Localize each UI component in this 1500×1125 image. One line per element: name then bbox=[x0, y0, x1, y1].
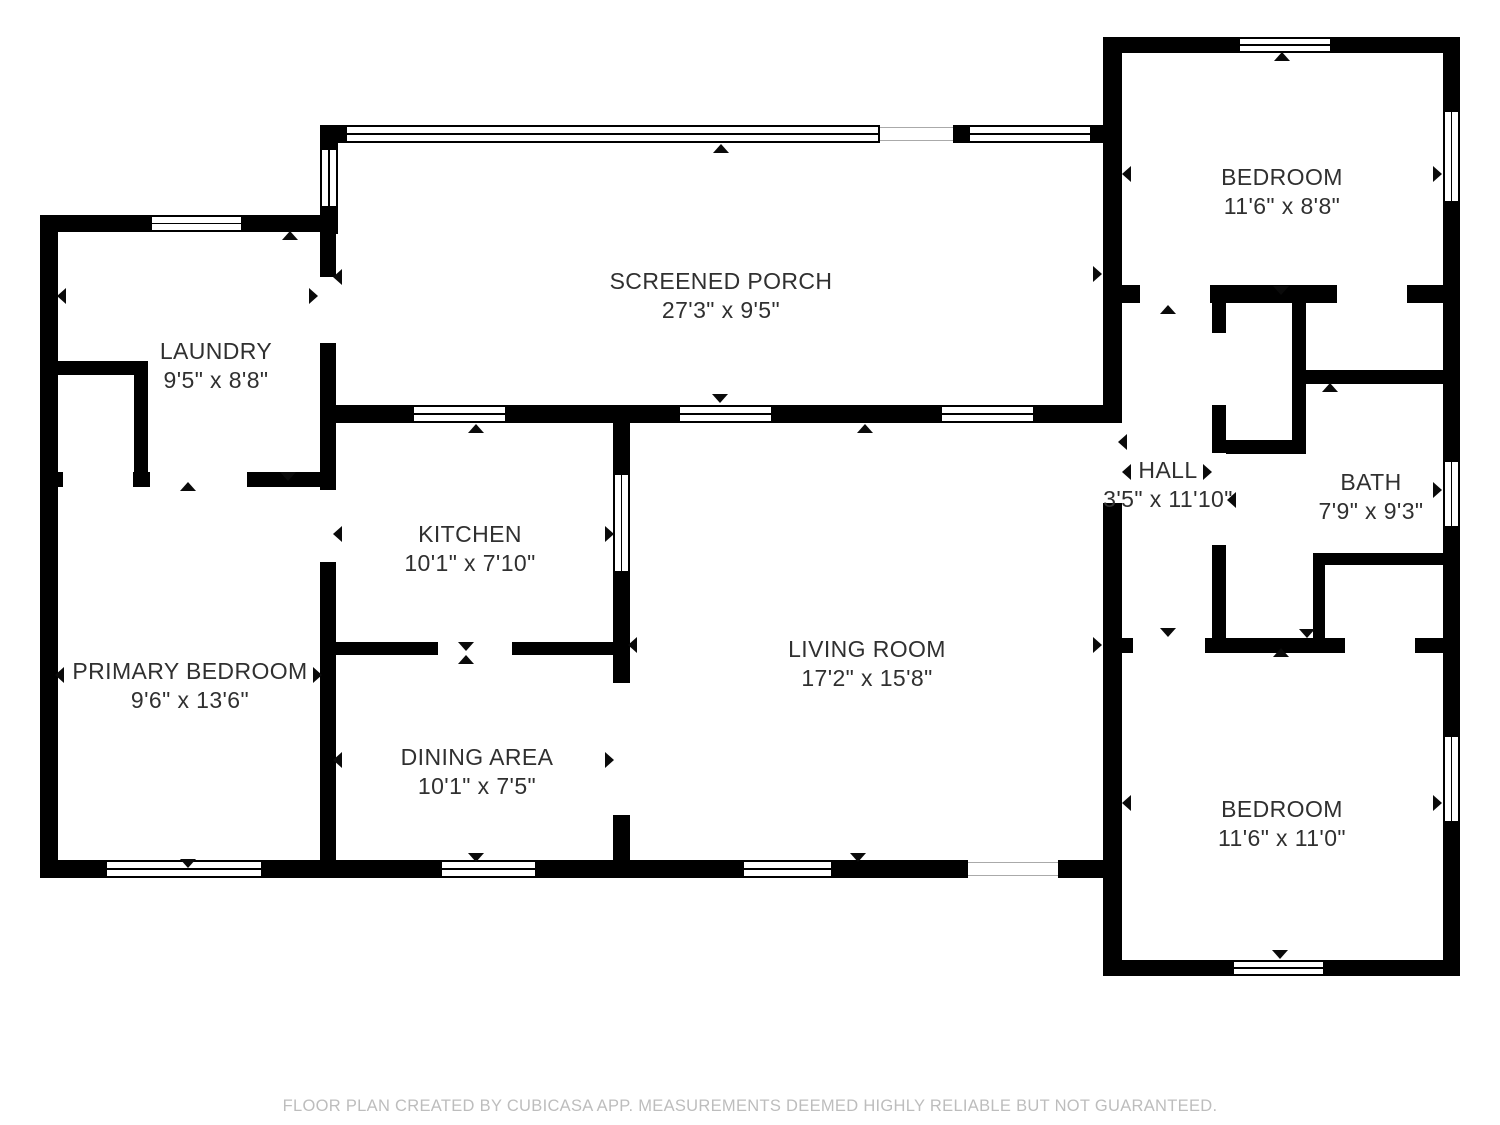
wall-segment bbox=[1103, 638, 1133, 653]
room-name: SCREENED PORCH bbox=[610, 267, 833, 296]
window bbox=[940, 405, 1035, 423]
room-dimensions: 7'9" x 9'3" bbox=[1319, 497, 1424, 526]
marker-arrow-icon bbox=[1160, 628, 1176, 637]
wall-segment bbox=[1103, 503, 1122, 960]
room-name: PRIMARY BEDROOM bbox=[72, 657, 307, 686]
room-label-hall: HALL3'5" x 11'10" bbox=[1103, 456, 1233, 514]
room-name: LAUNDRY bbox=[160, 337, 272, 366]
marker-arrow-icon bbox=[468, 853, 484, 862]
marker-arrow-icon bbox=[333, 526, 342, 542]
marker-arrow-icon bbox=[1273, 286, 1289, 295]
room-name: BEDROOM bbox=[1221, 163, 1343, 192]
window bbox=[412, 405, 507, 423]
room-label-dining-area: DINING AREA10'1" x 7'5" bbox=[401, 743, 554, 801]
room-label-bedroom-top: BEDROOM11'6" x 8'8" bbox=[1221, 163, 1343, 221]
wall-segment bbox=[1226, 440, 1306, 454]
wall-segment bbox=[320, 125, 338, 148]
marker-arrow-icon bbox=[1118, 434, 1127, 450]
wall-segment bbox=[1212, 545, 1226, 653]
window bbox=[678, 405, 773, 423]
marker-arrow-icon bbox=[309, 288, 318, 304]
window bbox=[1238, 37, 1332, 53]
marker-arrow-icon bbox=[333, 752, 342, 768]
window bbox=[1232, 960, 1325, 976]
marker-arrow-icon bbox=[1274, 52, 1290, 61]
marker-arrow-icon bbox=[55, 667, 64, 683]
wall-segment bbox=[512, 642, 630, 655]
room-name: DINING AREA bbox=[401, 743, 554, 772]
room-label-bath: BATH7'9" x 9'3" bbox=[1319, 468, 1424, 526]
wall-segment bbox=[332, 860, 440, 878]
wall-segment bbox=[1103, 285, 1122, 423]
room-dimensions: 9'5" x 8'8" bbox=[160, 366, 272, 395]
window bbox=[1443, 460, 1460, 528]
wall-segment bbox=[537, 860, 742, 878]
room-label-laundry: LAUNDRY9'5" x 8'8" bbox=[160, 337, 272, 395]
wall-segment bbox=[1407, 285, 1460, 303]
wall-segment bbox=[40, 472, 63, 487]
wall-segment bbox=[507, 405, 678, 423]
wall-segment bbox=[134, 361, 148, 487]
window bbox=[440, 860, 537, 878]
marker-arrow-icon bbox=[850, 853, 866, 862]
door-opening bbox=[880, 127, 953, 141]
window bbox=[613, 473, 630, 573]
footer-disclaimer: FLOOR PLAN CREATED BY CUBICASA APP. MEAS… bbox=[283, 1097, 1218, 1116]
wall-segment bbox=[1212, 295, 1226, 333]
room-label-kitchen: KITCHEN10'1" x 7'10" bbox=[404, 520, 535, 578]
wall-segment bbox=[613, 573, 630, 683]
wall-segment bbox=[1103, 37, 1122, 285]
marker-arrow-icon bbox=[1093, 266, 1102, 282]
room-dimensions: 17'2" x 15'8" bbox=[788, 664, 946, 693]
room-label-bedroom-bottom: BEDROOM11'6" x 11'0" bbox=[1218, 795, 1346, 853]
window bbox=[320, 148, 338, 208]
marker-arrow-icon bbox=[1273, 648, 1289, 657]
room-name: KITCHEN bbox=[404, 520, 535, 549]
marker-arrow-icon bbox=[458, 642, 474, 651]
marker-arrow-icon bbox=[1299, 629, 1315, 638]
marker-arrow-icon bbox=[458, 655, 474, 664]
marker-arrow-icon bbox=[1433, 482, 1442, 498]
floor-plan: LAUNDRY9'5" x 8'8"SCREENED PORCH27'3" x … bbox=[0, 0, 1500, 1125]
wall-segment bbox=[320, 405, 412, 423]
marker-arrow-icon bbox=[180, 482, 196, 491]
room-dimensions: 9'6" x 13'6" bbox=[72, 686, 307, 715]
wall-segment bbox=[1415, 638, 1443, 653]
marker-arrow-icon bbox=[1122, 166, 1131, 182]
room-name: LIVING ROOM bbox=[788, 635, 946, 664]
marker-arrow-icon bbox=[1122, 795, 1131, 811]
room-dimensions: 27'3" x 9'5" bbox=[610, 296, 833, 325]
wall-segment bbox=[332, 642, 438, 655]
marker-arrow-icon bbox=[713, 144, 729, 153]
marker-arrow-icon bbox=[1160, 305, 1176, 314]
room-name: BATH bbox=[1319, 468, 1424, 497]
marker-arrow-icon bbox=[605, 526, 614, 542]
wall-segment bbox=[773, 405, 940, 423]
wall-segment bbox=[40, 215, 58, 878]
room-label-living-room: LIVING ROOM17'2" x 15'8" bbox=[788, 635, 946, 693]
marker-arrow-icon bbox=[1433, 166, 1442, 182]
marker-arrow-icon bbox=[605, 752, 614, 768]
marker-arrow-icon bbox=[313, 667, 322, 683]
marker-arrow-icon bbox=[333, 269, 342, 285]
room-name: HALL bbox=[1103, 456, 1233, 485]
room-dimensions: 10'1" x 7'10" bbox=[404, 549, 535, 578]
marker-arrow-icon bbox=[1322, 383, 1338, 392]
wall-segment bbox=[1306, 370, 1443, 384]
room-dimensions: 10'1" x 7'5" bbox=[401, 772, 554, 801]
room-dimensions: 11'6" x 8'8" bbox=[1221, 192, 1343, 221]
marker-arrow-icon bbox=[280, 472, 296, 481]
window bbox=[968, 125, 1092, 143]
marker-arrow-icon bbox=[57, 288, 66, 304]
marker-arrow-icon bbox=[1272, 950, 1288, 959]
window bbox=[345, 125, 880, 143]
marker-arrow-icon bbox=[857, 424, 873, 433]
wall-segment bbox=[320, 208, 338, 234]
room-dimensions: 3'5" x 11'10" bbox=[1103, 485, 1233, 514]
wall-segment bbox=[613, 423, 630, 473]
window bbox=[150, 215, 243, 232]
marker-arrow-icon bbox=[628, 637, 637, 653]
marker-arrow-icon bbox=[1093, 637, 1102, 653]
wall-segment bbox=[320, 562, 336, 860]
room-label-primary-bedroom: PRIMARY BEDROOM9'6" x 13'6" bbox=[72, 657, 307, 715]
room-dimensions: 11'6" x 11'0" bbox=[1218, 824, 1346, 853]
marker-arrow-icon bbox=[180, 859, 196, 868]
room-label-screened-porch: SCREENED PORCH27'3" x 9'5" bbox=[610, 267, 833, 325]
marker-arrow-icon bbox=[468, 424, 484, 433]
room-name: BEDROOM bbox=[1218, 795, 1346, 824]
wall-segment bbox=[1292, 303, 1306, 453]
marker-arrow-icon bbox=[712, 394, 728, 403]
door-opening bbox=[968, 862, 1058, 876]
window bbox=[1443, 110, 1460, 203]
window bbox=[742, 860, 833, 878]
window bbox=[1443, 735, 1460, 823]
wall-segment bbox=[1212, 405, 1226, 453]
wall-segment bbox=[1103, 285, 1140, 303]
marker-arrow-icon bbox=[282, 231, 298, 240]
marker-arrow-icon bbox=[1433, 795, 1442, 811]
wall-segment bbox=[953, 125, 968, 143]
wall-segment bbox=[833, 860, 968, 878]
wall-segment bbox=[1313, 553, 1443, 565]
